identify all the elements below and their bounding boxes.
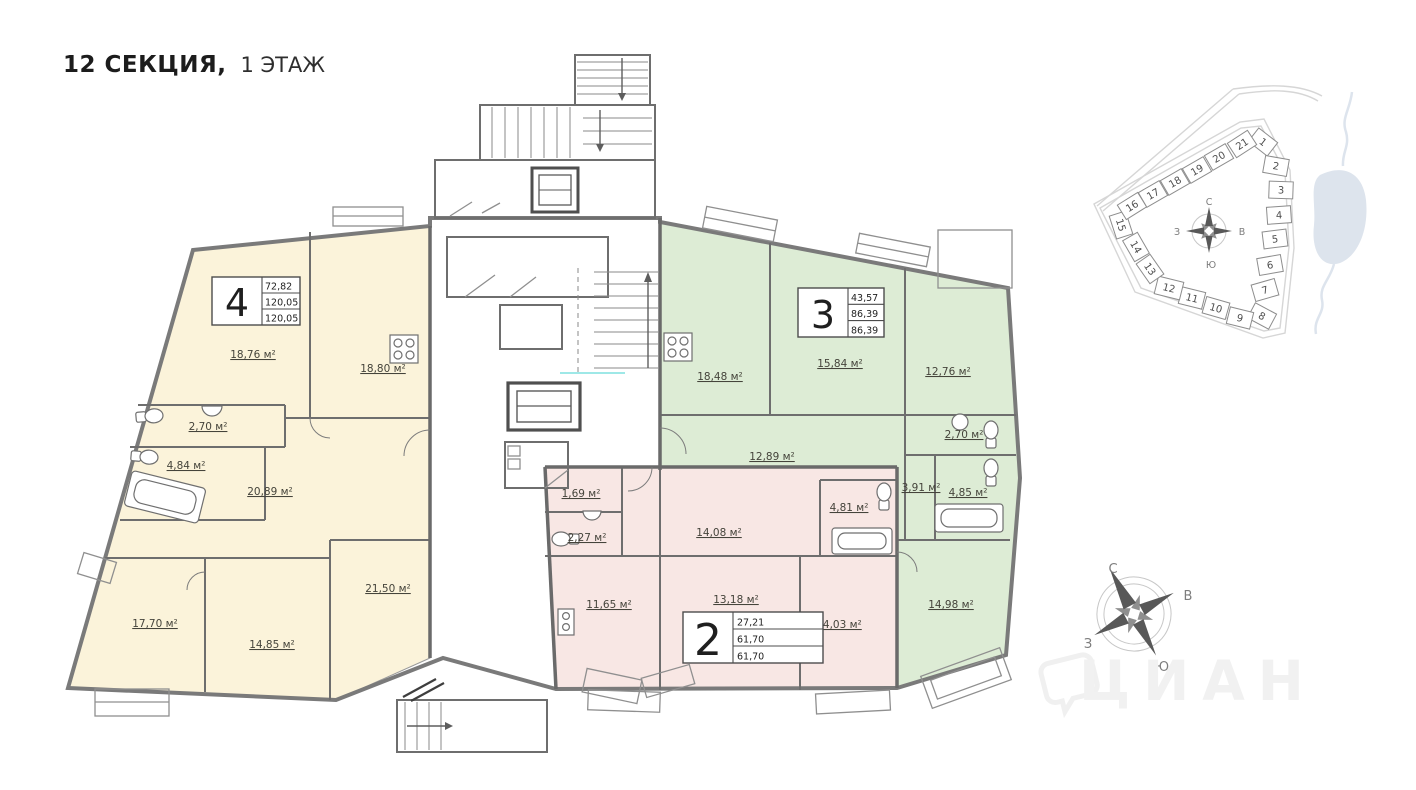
room-area-label: 4,81 м² [830,502,869,514]
apartment-number: 4 [225,281,249,325]
page-title: 12 СЕКЦИЯ,1 ЭТАЖ [63,52,325,78]
apartment-stat: 61,70 [737,635,764,646]
apartment-number: 2 [694,615,722,666]
floor-plan-drawing: 18,76 м² 18,80 м² 2,70 м² 4,84 м² 20,89 … [0,0,1416,790]
toilet-icon [877,483,891,510]
apartment-stat: 61,70 [737,652,764,663]
room-area-label: 2,70 м² [945,429,984,441]
apartment-stat: 72,82 [265,282,292,293]
door-leaf-lines [403,679,444,701]
floor-title: 1 ЭТАЖ [240,53,325,77]
apartment-4-statbox: 4 72,82 120,05 120,05 [212,277,300,325]
section-title: 12 СЕКЦИЯ, [63,52,226,78]
room-area-label: 14,85 м² [249,639,295,651]
room-area-label: 12,76 м² [925,366,971,378]
bathtub-icon [935,504,1003,532]
siteplan-section: 4 [1266,206,1291,225]
compass-west-label: З [1174,227,1180,238]
pond [1313,170,1366,264]
apartment-stat: 86,39 [851,325,878,336]
siteplan-compass-icon: С Ю З В [1174,197,1245,271]
apartment-3-statbox: 3 43,57 86,39 86,39 [798,288,884,337]
stove-icon [390,335,418,363]
apartment-stat: 120,05 [265,314,298,325]
apartment-stat: 86,39 [851,309,878,320]
upper-staircase-icon [575,55,650,105]
siteplan-section: 5 [1262,229,1288,249]
toilet-icon [984,421,998,448]
apartment-2-statbox: 2 27,21 61,70 61,70 [683,612,823,666]
svg-text:4: 4 [1276,210,1283,221]
room-area-label: 20,89 м² [247,486,293,498]
entry-door-leaves [450,202,500,216]
stair-core [447,237,658,488]
staircase-icon [578,268,658,372]
apartment-stat: 43,57 [851,293,878,304]
siteplan-section: 3 [1269,181,1294,199]
compass-east-label: В [1239,227,1246,238]
svg-text:5: 5 [1271,234,1279,246]
room-area-label: 1,69 м² [562,488,601,500]
room-area-label: 18,76 м² [230,349,276,361]
sink-icon [952,414,968,430]
room-area-label: 4,84 м² [167,460,206,472]
road [1233,86,1322,101]
bathtub-icon [832,528,892,554]
room-area-label: 12,89 м² [749,451,795,463]
balcony [333,207,403,226]
toilet-icon [135,408,163,424]
room-area-label: 3,91 м² [902,482,941,494]
room-area-label: 2,27 м² [568,532,607,544]
core-room [447,237,608,297]
door-leaf-lines [465,275,536,297]
site-plan: 1 2 3 4 5 6 7 8 9 10 11 12 13 14 15 16 1… [1094,86,1366,338]
siteplan-section: 21 [1227,130,1256,157]
room-area-label: 17,70 м² [132,618,178,630]
siteplan-section: 2 [1263,156,1290,177]
room-area-label: 18,80 м² [360,363,406,375]
room-area-label: 11,65 м² [586,599,632,611]
watermark: ЦИАН [1039,649,1317,715]
elevator-icon [508,383,580,430]
room-area-label: 13,18 м² [713,594,759,606]
entrance-top [435,55,655,218]
compass-north-label: С [1108,562,1117,577]
floorplan-page: 12 СЕКЦИЯ,1 ЭТАЖ [0,0,1416,790]
siteplan-section: 7 [1251,279,1279,302]
stove-icon [664,333,692,361]
core-shaft-room [500,305,562,349]
elevator-machine-room [532,168,578,212]
room-area-label: 18,48 м² [697,371,743,383]
room-area-label: 2,70 м² [189,421,228,433]
room-area-label: 14,98 м² [928,599,974,611]
room-area-label: 14,08 м² [696,527,742,539]
balcony [816,690,891,714]
compass-south-label: Ю [1206,260,1216,271]
apartment-stat: 120,05 [265,298,298,309]
siteplan-section: 11 [1178,287,1205,309]
apartment-number: 3 [811,293,835,337]
room-area-label: 15,84 м² [817,358,863,370]
siteplan-section: 10 [1202,297,1230,320]
siteplan-section-highlighted: 12 [1154,276,1184,300]
toilet-icon [984,459,998,486]
stove-icon [558,609,574,635]
compass-north-label: С [1206,197,1213,208]
siteplan-section: 6 [1257,255,1284,276]
room-area-label: 21,50 м² [365,583,411,595]
apartment-stat: 27,21 [737,618,764,629]
svg-text:3: 3 [1278,185,1285,196]
room-area-label: 4,85 м² [949,487,988,499]
compass-east-label: В [1184,589,1193,604]
watermark-text: ЦИАН [1079,649,1317,713]
